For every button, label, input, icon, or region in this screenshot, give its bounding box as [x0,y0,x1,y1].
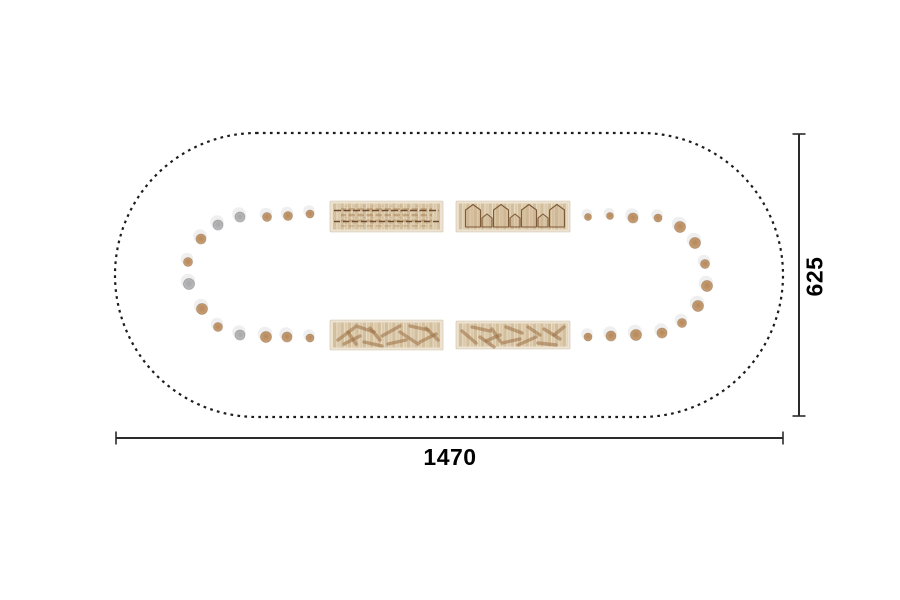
table-top-right [456,201,570,232]
stool [672,217,687,233]
stool [581,328,593,341]
stool [258,327,273,343]
stool-seat-wood [678,319,687,328]
stool-seat-wood [654,214,662,222]
table-bottom-right [456,321,570,349]
stool-seat-wood [184,258,193,267]
stool [260,208,273,222]
stool [279,327,293,342]
floor-plan-canvas: 1470 625 [0,0,900,600]
table-edge-dotted-outline [115,133,783,417]
stool [181,253,194,267]
dimension-label-height: 625 [802,202,829,352]
stool-seat-wood [693,301,704,312]
dimension-label-width: 1470 [375,444,525,471]
stool [654,323,668,338]
stool [687,233,702,249]
stool-seat-gray [235,330,245,340]
stool [675,314,688,328]
stool [194,299,209,315]
stool [210,215,224,230]
dimension-line-width [116,432,783,445]
stool-seat-wood [284,212,293,221]
floor-plan-svg [0,0,900,600]
stool-seat-wood [701,260,710,269]
stool [211,318,224,332]
stool-seat-wood [282,332,292,342]
stool [651,209,663,222]
stool [181,274,196,290]
stool [303,205,315,218]
stool [232,325,246,340]
stool [303,329,315,342]
stool-seat-wood [690,238,701,249]
stool-seat-wood [584,333,592,341]
stool [625,208,639,223]
stool [698,255,711,269]
stool [604,208,615,220]
stool [582,209,593,221]
stool-seat-wood [306,210,314,218]
stool-seat-wood [261,332,272,343]
stool-seat-wood [628,213,638,223]
table-top-deco [334,206,439,227]
stool-seat-wood [631,330,642,341]
stool-seat-gray [235,212,245,222]
stool [193,229,207,244]
stool-seat-gray [213,220,223,230]
stool-seat-wood [606,331,616,341]
stool [281,207,294,221]
stool-seat-wood [214,323,223,332]
stool [690,296,705,312]
stool-seat-wood [702,281,713,292]
stool [232,207,246,222]
stool-seat-wood [585,214,592,221]
table-top-left [330,201,443,232]
stool-seat-wood [197,304,208,315]
stool [628,325,643,341]
stool [699,276,714,292]
stool-seat-gray [184,279,195,290]
stool [603,326,617,341]
table-bottom-left [330,320,443,350]
stool-seat-wood [675,222,686,233]
stool-seat-wood [263,213,272,222]
stool-seat-wood [196,234,206,244]
stool-seat-wood [306,334,314,342]
stool-seat-wood [607,213,614,220]
stool-seat-wood [657,328,667,338]
